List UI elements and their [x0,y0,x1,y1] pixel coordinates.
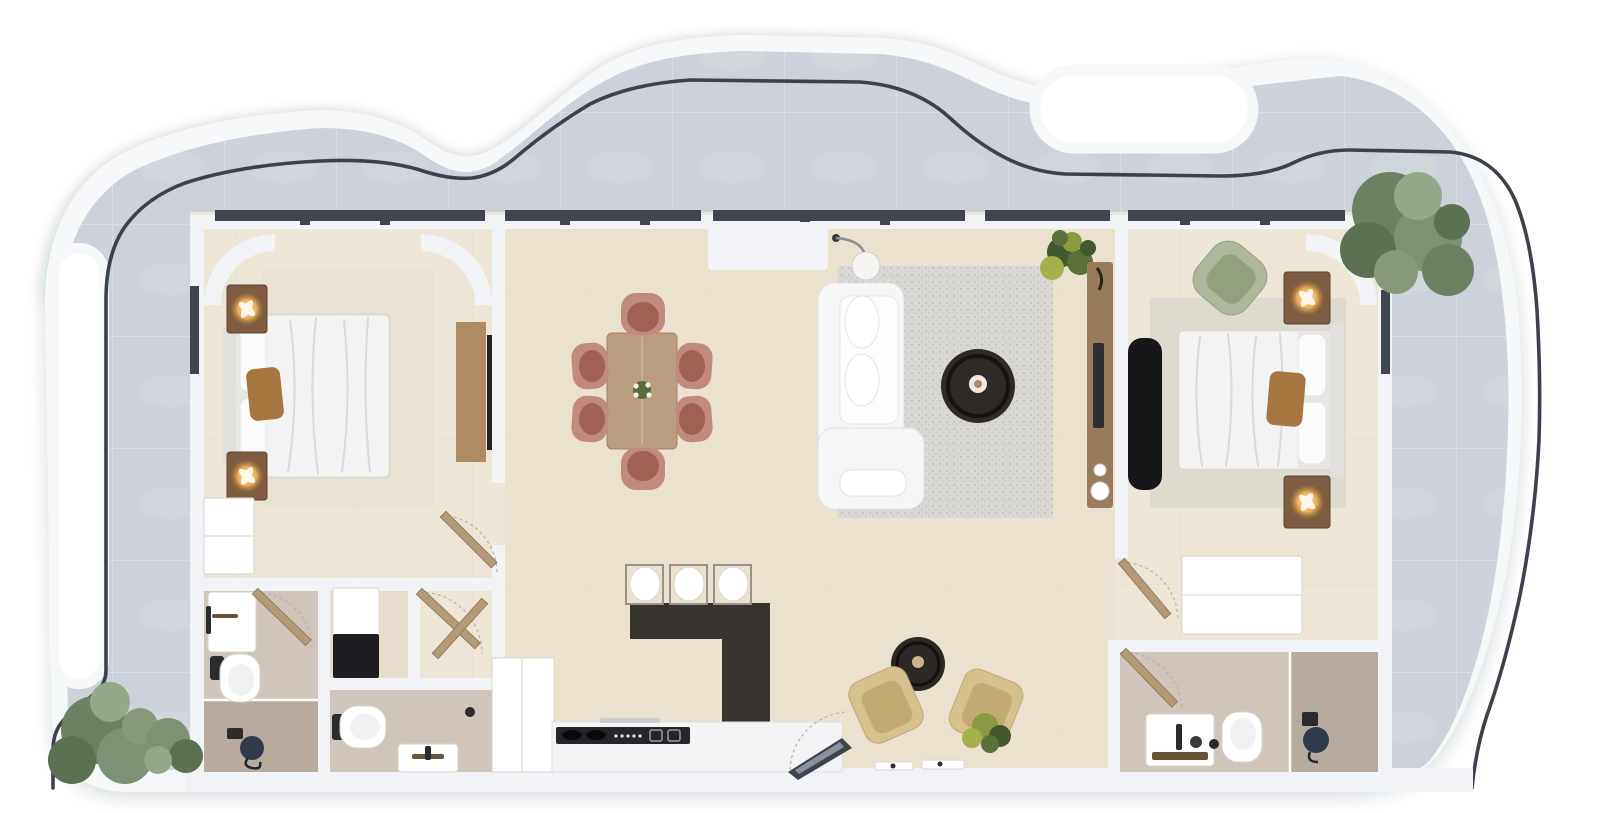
window-left-wall [190,286,199,374]
console-vase [1091,482,1109,500]
wall-unit-ac [708,222,828,270]
accent-pillow [1266,371,1307,428]
window-strip [215,210,485,221]
wall-closet-corridor [408,591,420,683]
tray-item [938,762,943,767]
nightstand-with-lamp [1284,476,1330,528]
window-right-wall [1381,290,1390,374]
console-vase [1094,464,1106,476]
apartment [185,210,1473,792]
bed [1178,322,1344,478]
bath-accessory [1190,736,1202,748]
headboard [1330,322,1344,478]
tall-cabinet [492,658,554,772]
shower-stool [240,736,264,760]
hood-shadow [600,718,660,723]
washing-machine [333,588,379,678]
duvet [266,316,388,476]
bath2-shower-floor [1290,652,1378,772]
wall-bath2-left [1108,652,1120,772]
bathroom-right [1120,648,1378,772]
window-strip [985,210,1110,221]
centerpiece [633,381,652,399]
tv-panel [1128,338,1162,490]
floor-plan-stage [0,0,1600,813]
bath-accessory [465,707,475,717]
sofa-pillow [840,470,906,496]
vanity-sink [398,744,458,772]
vanity-sink [206,592,256,652]
window-strip [505,210,701,221]
floor-plan-render [0,0,1600,813]
wall-bath2-right [1378,560,1392,772]
wall-living-bedroom2 [1115,228,1128,558]
soundbar [1093,343,1104,428]
shower-floor [204,700,318,772]
wall-bath1-closet [318,591,330,772]
terrace-cutout-left [54,248,104,684]
headboard [222,326,236,466]
wall-bath2-top [1108,640,1392,652]
dining-chair [674,342,713,390]
sofa-pillow [845,354,879,406]
dining-chair [674,395,713,443]
dining-chair [621,448,665,490]
bedroom1-desk [456,322,486,462]
accent-pillow [245,366,284,421]
wall-bedroom1-dining [492,228,505,483]
coffee-table [941,349,1015,423]
bedroom1-tv [487,335,492,450]
dining-chair [570,395,609,443]
nightstand-with-lamp [1284,272,1330,324]
sofa-pillow [845,296,879,348]
hall-bathroom [330,690,505,772]
window-strip [713,210,965,221]
bathroom-left [204,588,318,772]
nightstand-with-lamp [227,285,267,333]
laundry-closet [330,588,408,678]
tray-item [891,764,896,769]
media-console [1087,262,1113,508]
window-strip [1128,210,1345,221]
shower-drain [227,728,243,739]
vanity-sink [1146,714,1214,766]
dining-chair [570,342,609,390]
terrace-cutout-top [1035,70,1253,148]
nightstand-with-lamp [227,452,267,500]
dining-chair [621,293,665,335]
floor-tray [922,760,964,769]
